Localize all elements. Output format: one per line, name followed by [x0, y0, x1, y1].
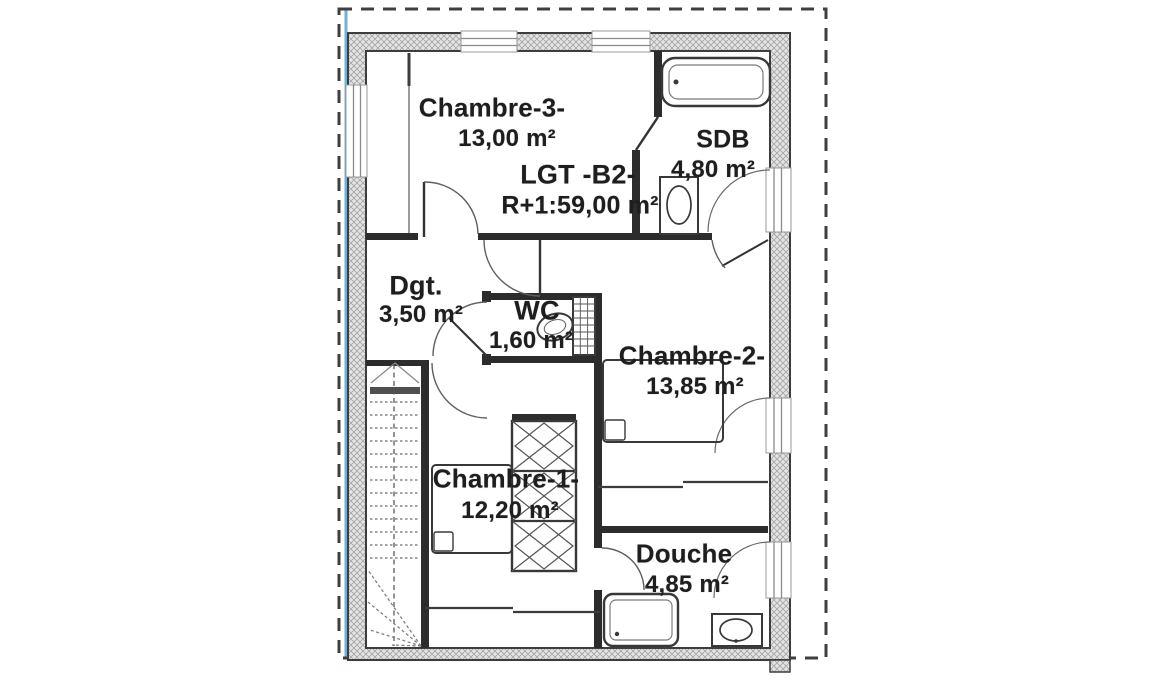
window-right-sdb — [766, 168, 791, 232]
staircase — [368, 363, 421, 646]
room-label-chambre-1: Chambre-1- — [433, 464, 579, 495]
window-right-douche — [766, 542, 791, 598]
partition-chambre-2 — [598, 482, 768, 487]
floor-plan-drawing — [0, 0, 1170, 694]
room-area-chambre-2: 13,85 m² — [646, 373, 744, 401]
wall-tab — [770, 660, 790, 672]
room-label-sdb: SDB — [696, 126, 749, 155]
sdb-washbasin-icon — [660, 177, 698, 234]
door-chambre-3 — [424, 182, 478, 237]
room-label-chambre-2: Chambre-2- — [619, 341, 765, 372]
room-area-chambre-1: 12,20 m² — [461, 497, 559, 525]
room-label-chambre-3: Chambre-3- — [419, 93, 565, 124]
shower-tray-icon — [604, 594, 678, 646]
douche-washbasin-icon — [712, 614, 762, 646]
unit-area-lgt-b2: R+1:59,00 m² — [501, 192, 658, 221]
window-right-chambre-2 — [766, 398, 791, 453]
partition-chambre-1 — [425, 608, 600, 612]
door-sdb-hall — [712, 240, 768, 268]
room-area-douche: 4,85 m² — [645, 571, 729, 599]
bathtub-icon — [662, 58, 770, 106]
window-top-2 — [592, 31, 650, 52]
room-area-wc: 1,60 m² — [489, 327, 573, 355]
floor-plan-page: Chambre-3- 13,00 m² SDB 4,80 m² LGT -B2-… — [0, 0, 1170, 694]
door-chambre-1 — [432, 363, 487, 418]
room-area-chambre-3: 13,00 m² — [458, 125, 556, 153]
door-sdb-inner — [636, 117, 658, 150]
room-label-dgt: Dgt. — [389, 271, 442, 302]
room-area-dgt: 3,50 m² — [379, 301, 463, 329]
door-hall — [484, 240, 540, 296]
unit-label-lgt-b2: LGT -B2- — [520, 160, 636, 191]
room-label-douche: Douche — [636, 539, 733, 570]
window-left — [346, 85, 367, 177]
room-label-wc: WC — [514, 296, 559, 327]
window-top-1 — [461, 31, 517, 52]
room-area-sdb: 4,80 m² — [671, 156, 755, 184]
